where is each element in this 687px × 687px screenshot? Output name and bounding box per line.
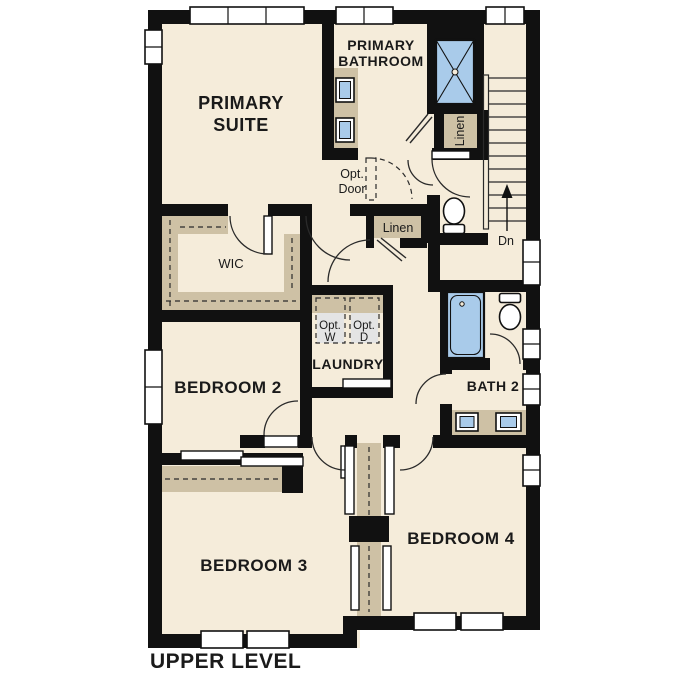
primary-bathroom-label-line1: PRIMARY	[347, 37, 415, 53]
bedroom3-closet-door-left	[181, 451, 243, 460]
bedroom2-label: BEDROOM 2	[174, 378, 281, 397]
wic-label: WIC	[218, 256, 243, 271]
primary-suite-label-line1: PRIMARY	[198, 93, 284, 113]
wic-door-leaf	[264, 216, 272, 254]
opt-washer-label-line1: Opt.	[319, 320, 341, 332]
opt-dryer-label-line2: D	[360, 332, 368, 344]
bath2-tub	[447, 292, 484, 358]
primary-bathroom-label-line2: BATHROOM	[338, 53, 423, 69]
shared-closet-door-right-lower	[383, 546, 391, 610]
stairs-down-label: Dn	[498, 234, 514, 248]
linen-bath-label: Linen	[453, 116, 467, 147]
bedroom3-label: BEDROOM 3	[200, 556, 307, 575]
shared-closet-door-left-lower	[351, 546, 359, 610]
bedroom3-closet-door-right	[241, 457, 303, 466]
bedroom4-label: BEDROOM 4	[407, 529, 515, 548]
floor-plan-svg: PRIMARY SUITE PRIMARY BATHROOM WIC Linen…	[0, 0, 687, 687]
laundry-pocket-door	[343, 379, 391, 388]
opt-washer-label-line2: W	[325, 332, 336, 344]
shared-closet-door-right-upper	[385, 446, 394, 514]
laundry-label: LAUNDRY	[312, 356, 384, 372]
stair-door-leaf	[432, 151, 470, 159]
floor-plan: PRIMARY SUITE PRIMARY BATHROOM WIC Linen…	[0, 0, 687, 687]
primary-suite-label-line2: SUITE	[213, 115, 269, 135]
bath2-toilet	[500, 294, 521, 330]
wic-shelf-top	[178, 216, 228, 234]
shower	[436, 40, 474, 104]
opt-door-label-line1: Opt.	[340, 167, 364, 181]
bath2-label: BATH 2	[467, 378, 520, 394]
primary-toilet	[444, 198, 465, 234]
linen-hall-label: Linen	[383, 221, 414, 235]
bedroom2-door-leaf	[264, 436, 298, 447]
plan-title: UPPER LEVEL	[150, 650, 301, 673]
opt-dryer-label-line1: Opt.	[353, 320, 375, 332]
opt-door-label-line2: Door	[338, 182, 365, 196]
shared-closet-door-left-upper	[345, 446, 354, 514]
